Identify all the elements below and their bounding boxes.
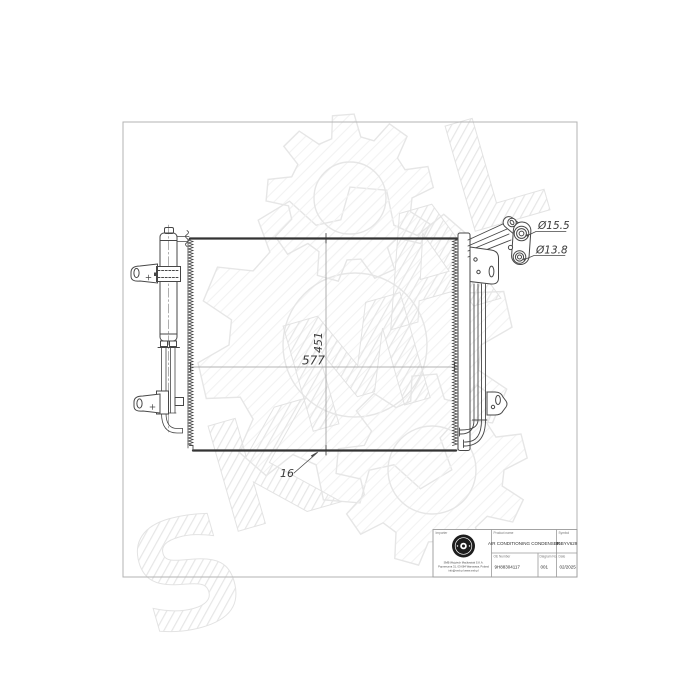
- company-address: Poprzeczna 31, 03-084 Warszawa, Poland: [438, 565, 489, 569]
- company-contact: info@smb.pl www.smb.pl: [448, 569, 478, 573]
- oe-number-label: OE Number: [494, 555, 512, 559]
- oe-number-value: 9H88304117: [495, 565, 521, 570]
- upper-right-bracket: [470, 247, 499, 284]
- product-name-value: AIR CONDITIONING CONDENSER: [488, 541, 561, 546]
- dim-port-bottom: Ø13.8: [535, 245, 568, 257]
- company-logo: [452, 535, 475, 558]
- diagram-no-label: Diagram No.: [540, 555, 558, 559]
- drawing-sheet: S K M A L: [0, 0, 700, 700]
- right-tank: [458, 233, 470, 451]
- dim-core-width: 577: [302, 354, 325, 368]
- bottom-left-bracket: [134, 394, 160, 413]
- dim-core-height: 451: [312, 332, 325, 353]
- importer-label: Importer: [436, 531, 449, 535]
- dim-port-top: Ø15.5: [537, 220, 570, 232]
- date-label: Date: [559, 555, 566, 559]
- symbol-label: Symbol: [559, 531, 570, 535]
- company-name: SMB Wojciech Maćkowiak S.K.A.: [444, 561, 484, 565]
- condenser-technical-drawing: S K M A L: [0, 0, 700, 700]
- top-left-bracket: [131, 264, 158, 283]
- diagram-no-value: 001: [541, 565, 549, 570]
- symbol-value: 86BYV629: [556, 541, 578, 546]
- title-block: Importer SMB Wojciech Maćkowiak S.K.A. P…: [433, 530, 578, 578]
- receiver-drier: [131, 228, 184, 434]
- date-value: 02/2025: [560, 565, 577, 570]
- product-name-label: Product name: [494, 531, 514, 535]
- dim-core-thickness: 16: [280, 467, 294, 480]
